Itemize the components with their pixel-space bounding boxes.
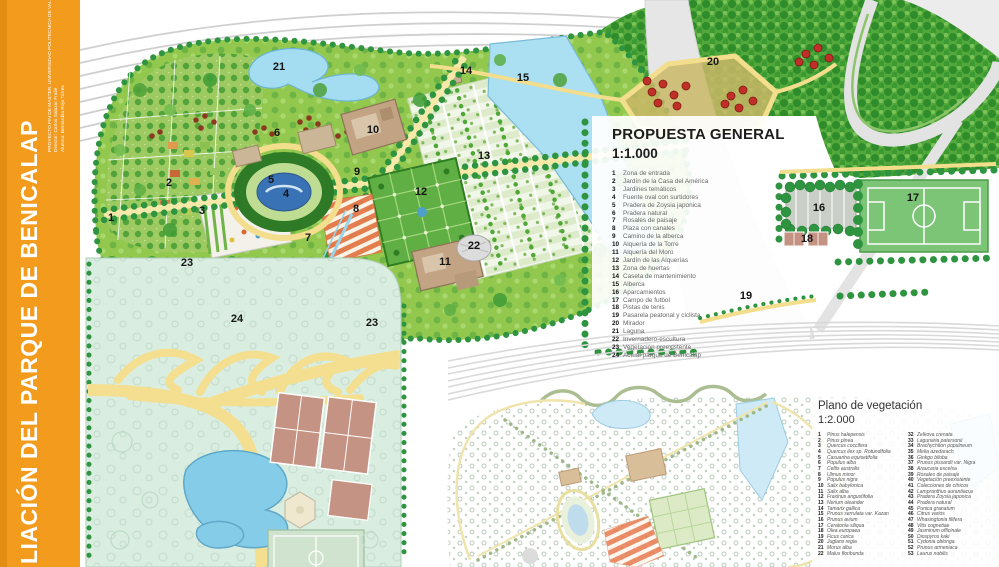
species-item: 22Malus floribunda xyxy=(818,552,908,558)
legend-item: 11Alquería del Moro xyxy=(612,249,812,257)
legend-item: 7Rosales de paisaje xyxy=(612,217,812,225)
legend-title: PROPUESTA GENERAL xyxy=(612,126,812,143)
page-title: LIACIÓN DEL PARQUE DE BENICALAP xyxy=(16,120,42,564)
species-item: 53Laurus nobilis xyxy=(908,552,998,558)
legend-item: 14Caseta de mantenimiento xyxy=(612,273,812,281)
legend-item: 10Alquería de la Torre xyxy=(612,241,812,249)
legend-title: Plano de vegetación xyxy=(818,400,998,412)
credit-line-3: Alumno: Bernardita Rojo Torres xyxy=(61,0,67,152)
project-credits: PROYECTO FIN DE MASTER. UNIVERSIDAD POLI… xyxy=(48,0,67,152)
legend-item: 1Zona de entrada xyxy=(612,170,812,178)
old-park xyxy=(86,258,404,567)
legend-propuesta-general: PROPUESTA GENERAL 1:1.000 1Zona de entra… xyxy=(612,126,812,360)
sidebar-edge xyxy=(0,0,7,567)
veg-garden xyxy=(649,489,714,550)
legend-item: 5Pradera de Zoysia japonica xyxy=(612,202,812,210)
legend-scale: 1:1.000 xyxy=(612,146,812,161)
plan-sheet: LIACIÓN DEL PARQUE DE BENICALAP PROYECTO… xyxy=(0,0,999,567)
legend-item: 2Jardín de la Casa del América xyxy=(612,178,812,186)
legend-item: 12Jardín de las Alquerías xyxy=(612,257,812,265)
legend-item: 16Aparcamientos xyxy=(612,289,812,297)
legend-items: 1Zona de entrada 2Jardín de la Casa del … xyxy=(612,170,812,360)
legend-item: 6Pradera natural xyxy=(612,210,812,218)
old-park-field xyxy=(268,530,364,567)
invernadero-escultura xyxy=(457,235,491,261)
legend-item: 20Mirador xyxy=(612,320,812,328)
legend-item: 23Vegetación preexistente xyxy=(612,344,812,352)
legend-item: 22Invernadero-escultura xyxy=(612,336,812,344)
legend-item: 18Pistas de tenis xyxy=(612,304,812,312)
legend-vegetacion: Plano de vegetación 1:2.000 1Pinus halep… xyxy=(818,400,998,557)
old-park-pond-small xyxy=(196,521,243,548)
legend-item: 13Zona de huertas xyxy=(612,265,812,273)
tennis-court-small xyxy=(328,480,372,521)
legend-item: 4Fuente oval con surtidores xyxy=(612,194,812,202)
species-column-1: 1Pinus halepensis 2Pinus pinea 3Quercus … xyxy=(818,433,908,557)
legend-item: 8Plaza con canales xyxy=(612,225,812,233)
legend-item: 24Actual parque de Benicalap xyxy=(612,352,812,360)
legend-item: 21Laguna xyxy=(612,328,812,336)
legend-item: 19Pasarela peatonal y ciclista xyxy=(612,312,812,320)
legend-item: 17Campo de futbol xyxy=(612,297,812,305)
legend-item: 15Alberca xyxy=(612,281,812,289)
legend-item: 9Camino de la alberca xyxy=(612,233,812,241)
species-column-2: 32Zelkova crenata 33Lagunaria patersonii… xyxy=(908,433,998,557)
sidebar: LIACIÓN DEL PARQUE DE BENICALAP PROYECTO… xyxy=(0,0,80,567)
legend-item: 3Jardines temáticos xyxy=(612,186,812,194)
football-field xyxy=(853,179,988,252)
legend-scale: 1:2.000 xyxy=(818,414,998,426)
